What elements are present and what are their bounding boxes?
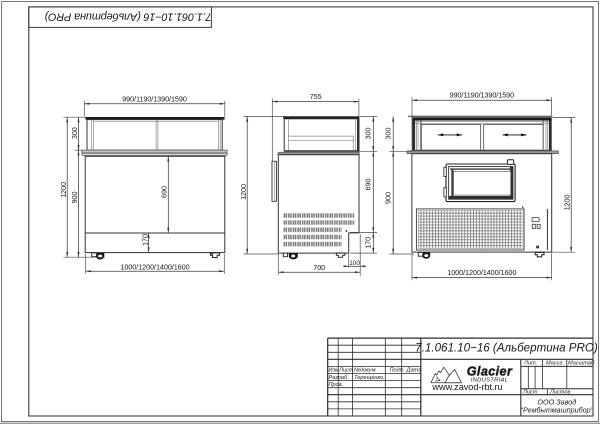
svg-text:690: 690 xyxy=(160,186,169,198)
svg-text:1200: 1200 xyxy=(563,195,572,211)
svg-text:№докум.: №докум. xyxy=(354,368,377,374)
svg-text:170: 170 xyxy=(364,237,373,249)
svg-text:Лист: Лист xyxy=(338,368,354,374)
svg-text:1000/1200/1400/1600: 1000/1200/1400/1600 xyxy=(120,262,189,271)
svg-text:700: 700 xyxy=(313,263,325,272)
svg-text:Лист: Лист xyxy=(522,389,538,395)
svg-text:7.1.061.10−16 (Альбертина PRO): 7.1.061.10−16 (Альбертина PRO) xyxy=(45,11,212,23)
svg-text:Лит.: Лит. xyxy=(523,361,537,367)
svg-text:300: 300 xyxy=(70,127,79,139)
svg-text:“Рембытмашприбор”: “Рембытмашприбор” xyxy=(521,406,594,415)
svg-text:690: 690 xyxy=(364,179,373,191)
svg-text:Терещенко.: Терещенко. xyxy=(354,375,385,381)
svg-text:900: 900 xyxy=(383,192,392,204)
svg-text:Дата: Дата xyxy=(406,368,422,374)
svg-text:7.1.061.10−16 (Альбертина PRO): 7.1.061.10−16 (Альбертина PRO) xyxy=(415,341,598,354)
svg-text:300: 300 xyxy=(383,128,392,140)
svg-text:Масса: Масса xyxy=(546,361,563,367)
svg-text:Разраб.: Разраб. xyxy=(329,375,349,381)
svg-text:755: 755 xyxy=(310,92,322,101)
svg-text:Подп.: Подп. xyxy=(390,368,405,374)
svg-text:Листов: Листов xyxy=(549,389,570,395)
svg-text:Glacier: Glacier xyxy=(467,364,513,378)
svg-text:300: 300 xyxy=(364,128,373,140)
svg-text:1200: 1200 xyxy=(239,184,248,200)
svg-text:990/1190/1390/1590: 990/1190/1390/1590 xyxy=(122,94,187,103)
svg-text:www.zavod-rbt.ru: www.zavod-rbt.ru xyxy=(431,382,502,392)
svg-text:100: 100 xyxy=(349,260,360,267)
svg-text:Изм: Изм xyxy=(329,368,340,374)
svg-text:990/1190/1390/1590: 990/1190/1390/1590 xyxy=(449,91,514,100)
svg-text:Пров.: Пров. xyxy=(329,382,344,388)
svg-text:Масштаб: Масштаб xyxy=(568,361,595,367)
svg-text:1000/1200/1400/1600: 1000/1200/1400/1600 xyxy=(447,268,516,277)
svg-text:1200: 1200 xyxy=(59,182,68,198)
svg-text:170: 170 xyxy=(140,234,149,246)
svg-text:900: 900 xyxy=(70,192,79,204)
